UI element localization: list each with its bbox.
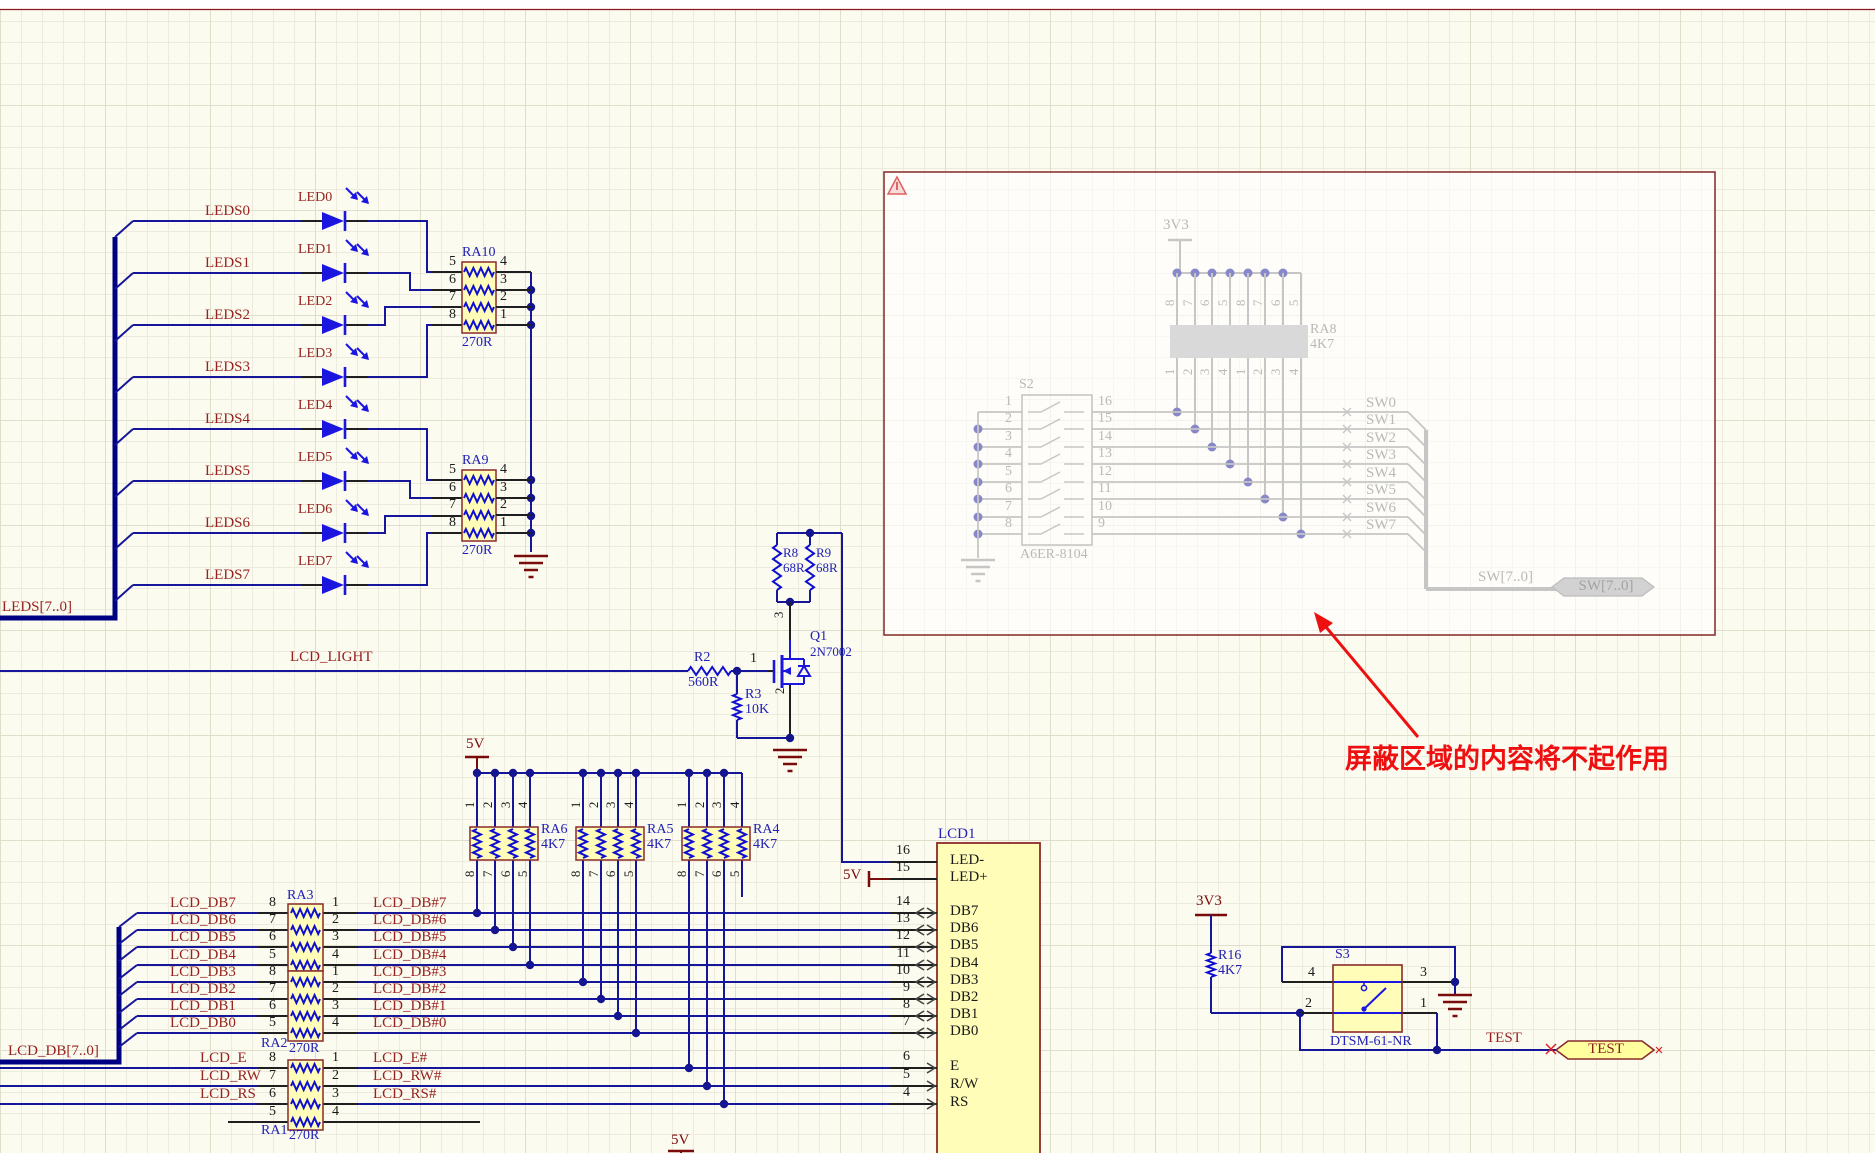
pin-number: 2: [481, 796, 495, 814]
pin-number: 6: [252, 1087, 276, 1102]
pin-number: 7: [432, 498, 456, 513]
pin-name: E: [950, 1059, 959, 1075]
value-label[interactable]: A6ER-8104: [1020, 548, 1088, 563]
pin-number: 8: [675, 865, 689, 883]
net-label[interactable]: LCD_DB#4: [373, 948, 446, 964]
pin-name: DB7: [950, 904, 978, 920]
net-label[interactable]: SW5: [1366, 483, 1396, 499]
net-label[interactable]: LEDS1: [205, 256, 250, 272]
pin-number: 13: [1098, 447, 1112, 462]
net-label[interactable]: LCD_DB6: [170, 913, 236, 929]
pin-number: 1: [675, 796, 689, 814]
pin-name: DB3: [950, 973, 978, 989]
pin-number: 2: [693, 796, 707, 814]
pin-number: 8: [252, 965, 276, 980]
pin-name: DB0: [950, 1024, 978, 1040]
bus-net-label[interactable]: LCD_DB[7..0]: [8, 1044, 99, 1060]
designator-label[interactable]: S3: [1335, 948, 1350, 963]
pin-number: 9: [1098, 517, 1105, 532]
value-label[interactable]: 4K7: [1218, 964, 1242, 979]
pin-number: 8: [432, 308, 456, 323]
pin-number: 1: [569, 796, 583, 814]
net-label[interactable]: LCD_RW#: [373, 1069, 441, 1085]
lcd-data-bus: [0, 913, 937, 1122]
pin-number: 3: [604, 796, 618, 814]
pin-number: 13: [884, 912, 910, 927]
net-label[interactable]: LCD_DB#3: [373, 965, 446, 981]
power-label[interactable]: 3V3: [1163, 218, 1189, 234]
pin-number: 7: [1251, 294, 1265, 312]
test-circuit: [1195, 915, 1662, 1054]
designator-label[interactable]: R2: [694, 651, 710, 666]
resistor-network-ra9[interactable]: [462, 470, 531, 541]
pin-number: 6: [432, 481, 456, 496]
power-label[interactable]: 5V: [671, 1133, 689, 1149]
pin-number: 4: [500, 255, 507, 270]
pin-number: 15: [884, 861, 910, 876]
net-label[interactable]: LCD_E#: [373, 1051, 427, 1067]
designator-label[interactable]: LED6: [298, 503, 332, 518]
pin-number: 5: [994, 465, 1012, 480]
designator-label[interactable]: LED1: [298, 243, 332, 258]
pin-number: 6: [432, 273, 456, 288]
pin-number: 8: [569, 865, 583, 883]
pin-number: 1: [332, 965, 339, 980]
net-label[interactable]: LCD_RS: [200, 1087, 256, 1103]
value-label[interactable]: 68R: [783, 561, 805, 575]
pin-number: 11: [1098, 482, 1111, 497]
port-label[interactable]: SW[7..0]: [1566, 579, 1646, 595]
value-label[interactable]: 270R: [289, 1042, 319, 1057]
value-label[interactable]: 10K: [745, 703, 769, 718]
pin-number: 1: [463, 796, 477, 814]
pin-number: 2: [773, 682, 787, 700]
net-label[interactable]: TEST: [1486, 1031, 1522, 1047]
pin-name: LED+: [950, 870, 988, 886]
designator-label[interactable]: RA6: [541, 823, 567, 838]
pin-number: 10: [884, 964, 910, 979]
pin-number: 6: [1269, 294, 1283, 312]
designator-label[interactable]: LED4: [298, 399, 332, 414]
designator-label[interactable]: S2: [1019, 378, 1034, 393]
designator-label[interactable]: Q1: [810, 630, 827, 645]
resistor-network-ra10[interactable]: [462, 262, 531, 333]
pin-number: 7: [432, 290, 456, 305]
resistor-network-ra1[interactable]: [288, 1060, 323, 1130]
pin-number: 16: [1098, 395, 1112, 410]
value-label[interactable]: 270R: [462, 544, 492, 559]
pin-name: RS: [950, 1095, 968, 1111]
pin-number: 3: [994, 430, 1012, 445]
pin-number: 10: [1098, 500, 1112, 515]
pin-number: 1: [1163, 363, 1177, 381]
pin-number: 2: [332, 982, 339, 997]
pin-number: 1: [500, 308, 507, 323]
pin-number: 4: [500, 463, 507, 478]
resistor-network-ra2[interactable]: [288, 971, 323, 1041]
pin-number: 12: [1098, 465, 1112, 480]
net-label[interactable]: SW3: [1366, 448, 1396, 464]
value-label[interactable]: 4K7: [647, 838, 671, 853]
pin-number: 3: [1420, 966, 1427, 981]
pin-number: 7: [1181, 294, 1195, 312]
pin-number: 1: [500, 516, 507, 531]
net-label[interactable]: LCD_DB#7: [373, 896, 446, 912]
net-label[interactable]: LCD_DB5: [170, 930, 236, 946]
pin-number: 2: [500, 498, 507, 513]
net-label[interactable]: LEDS7: [205, 568, 250, 584]
pin-number: 5: [432, 255, 456, 270]
designator-label[interactable]: RA2: [261, 1037, 287, 1052]
designator-label[interactable]: RA1: [261, 1124, 287, 1139]
designator-label[interactable]: LED7: [298, 555, 332, 570]
designator-label[interactable]: LED0: [298, 191, 332, 206]
pin-number: 2: [1181, 363, 1195, 381]
value-label[interactable]: 4K7: [541, 838, 565, 853]
designator-label[interactable]: R8: [783, 546, 798, 560]
pin-number: 12: [884, 929, 910, 944]
pin-number: 4: [994, 447, 1012, 462]
pin-number: 2: [1305, 997, 1312, 1012]
designator-label[interactable]: R9: [816, 546, 831, 560]
value-label[interactable]: 68R: [816, 561, 838, 575]
value-label[interactable]: 4K7: [753, 838, 777, 853]
net-label[interactable]: LEDS6: [205, 516, 250, 532]
value-label[interactable]: 560R: [688, 676, 718, 691]
pin-number: 4: [1287, 363, 1301, 381]
pin-number: 14: [1098, 430, 1112, 445]
pin-number: 7: [481, 865, 495, 883]
pin-number: 1: [1234, 363, 1248, 381]
pin-name: R/W: [950, 1077, 978, 1093]
pin-number: 3: [499, 796, 513, 814]
pin-number: 5: [728, 865, 742, 883]
value-label[interactable]: 2N7002: [810, 645, 852, 659]
pin-name: DB1: [950, 1007, 978, 1023]
pin-number: 8: [463, 865, 477, 883]
pin-number: 3: [500, 481, 507, 496]
net-label[interactable]: LCD_LIGHT: [290, 650, 373, 666]
net-label[interactable]: LCD_DB#5: [373, 930, 446, 946]
net-label[interactable]: LCD_DB4: [170, 948, 236, 964]
pin-number: 4: [622, 796, 636, 814]
pin-number: 5: [516, 865, 530, 883]
designator-label[interactable]: LED5: [298, 451, 332, 466]
pin-number: 6: [604, 865, 618, 883]
pin-number: 3: [710, 796, 724, 814]
net-label[interactable]: LCD_DB#0: [373, 1016, 446, 1032]
pin-number: 3: [500, 273, 507, 288]
net-label[interactable]: LCD_DB#2: [373, 982, 446, 998]
pin-number: 6: [252, 930, 276, 945]
pin-number: 1: [332, 1051, 339, 1066]
resistor-network-ra6[interactable]: [470, 827, 538, 860]
pin-number: 7: [587, 865, 601, 883]
pin-number: 8: [252, 896, 276, 911]
net-label[interactable]: LEDS4: [205, 412, 250, 428]
pin-number: 4: [884, 1086, 910, 1101]
pin-name: DB5: [950, 938, 978, 954]
pin-number: 15: [1098, 412, 1112, 427]
pin-number: 1: [750, 652, 757, 667]
pin-number: 6: [499, 865, 513, 883]
value-label[interactable]: 270R: [462, 336, 492, 351]
value-label[interactable]: 270R: [289, 1129, 319, 1144]
pin-number: 2: [500, 290, 507, 305]
designator-label[interactable]: RA3: [287, 889, 313, 904]
net-label[interactable]: SW4: [1366, 466, 1396, 482]
net-label[interactable]: SW0: [1366, 396, 1396, 412]
pin-number: 7: [252, 913, 276, 928]
schematic-sheet: LEDS[7..0]LEDS0LED0LEDS1LED1LEDS2LED2LED…: [0, 0, 1875, 1153]
designator-label[interactable]: LED3: [298, 347, 332, 362]
designator-label[interactable]: RA8: [1310, 323, 1336, 338]
pin-number: 3: [1198, 363, 1212, 381]
annotation-text[interactable]: 屏蔽区域的内容将不起作用: [1345, 745, 1669, 773]
mosfet-q1[interactable]: [768, 640, 810, 688]
switch-s3[interactable]: [1333, 965, 1402, 1032]
net-label[interactable]: LEDS5: [205, 464, 250, 480]
pin-number: 8: [1163, 294, 1177, 312]
pin-number: 8: [432, 516, 456, 531]
pin-number: 8: [1234, 294, 1248, 312]
pin-number: 6: [884, 1050, 910, 1065]
pin-number: 4: [1216, 363, 1230, 381]
resistor-network-ra5[interactable]: [576, 827, 644, 860]
pin-number: 8: [252, 1051, 276, 1066]
pin-number: 6: [252, 999, 276, 1014]
pin-number: 2: [587, 796, 601, 814]
net-label[interactable]: SW1: [1366, 413, 1396, 429]
net-label[interactable]: LEDS2: [205, 308, 250, 324]
pin-number: 6: [994, 482, 1012, 497]
designator-label[interactable]: RA5: [647, 823, 673, 838]
schematic-canvas: [0, 0, 1875, 1153]
value-label[interactable]: 4K7: [1310, 338, 1334, 353]
pin-number: 4: [332, 1105, 339, 1120]
port-label[interactable]: TEST: [1566, 1042, 1646, 1058]
designator-label[interactable]: RA9: [462, 454, 488, 469]
pin-number: 7: [252, 1069, 276, 1084]
net-label[interactable]: LCD_E: [200, 1051, 247, 1067]
pin-number: 4: [728, 796, 742, 814]
net-label[interactable]: LCD_RS#: [373, 1087, 436, 1103]
pin-number: 11: [884, 947, 910, 962]
pin-name: LED-: [950, 853, 984, 869]
pin-name: DB6: [950, 921, 978, 937]
designator-label[interactable]: R16: [1218, 949, 1241, 964]
pin-number: 7: [884, 1015, 910, 1030]
pin-number: 9: [884, 981, 910, 996]
pin-number: 2: [332, 913, 339, 928]
pin-number: 3: [332, 1087, 339, 1102]
designator-label[interactable]: RA10: [462, 246, 495, 261]
net-label[interactable]: SW7: [1366, 518, 1396, 534]
power-label[interactable]: 3V3: [1196, 894, 1222, 910]
pin-name: DB2: [950, 990, 978, 1006]
net-label[interactable]: LCD_DB#1: [373, 999, 446, 1015]
pin-number: 6: [1198, 294, 1212, 312]
pin-number: 5: [1287, 294, 1301, 312]
net-label[interactable]: LEDS0: [205, 204, 250, 220]
pin-number: 4: [332, 948, 339, 963]
pin-number: 5: [252, 1105, 276, 1120]
pin-number: 5: [884, 1068, 910, 1083]
designator-label[interactable]: RA4: [753, 823, 779, 838]
pin-number: 3: [1269, 363, 1283, 381]
pin-number: 1: [994, 395, 1012, 410]
net-label[interactable]: LCD_DB3: [170, 965, 236, 981]
net-label[interactable]: LCD_DB1: [170, 999, 236, 1015]
pin-number: 7: [252, 982, 276, 997]
net-label[interactable]: LCD_DB7: [170, 896, 236, 912]
resistor-network-ra3[interactable]: [288, 904, 323, 971]
pin-number: 16: [884, 844, 910, 859]
net-label[interactable]: SW[7..0]: [1478, 570, 1533, 586]
pin-number: 3: [332, 930, 339, 945]
pin-number: 8: [994, 517, 1012, 532]
value-label[interactable]: DTSM-61-NR: [1330, 1035, 1412, 1050]
net-label[interactable]: SW2: [1366, 431, 1396, 447]
pin-number: 5: [252, 948, 276, 963]
power-label[interactable]: 5V: [843, 868, 861, 884]
power-label[interactable]: 5V: [466, 737, 484, 753]
pin-number: 5: [432, 463, 456, 478]
net-label[interactable]: SW6: [1366, 501, 1396, 517]
pin-number: 7: [994, 500, 1012, 515]
pin-number: 7: [693, 865, 707, 883]
pin-number: 4: [332, 1016, 339, 1031]
pin-number: 8: [884, 998, 910, 1013]
net-label[interactable]: LCD_DB#6: [373, 913, 446, 929]
net-label[interactable]: LCD_DB0: [170, 1016, 236, 1032]
designator-label[interactable]: R3: [745, 688, 761, 703]
designator-label[interactable]: LED2: [298, 295, 332, 310]
designator-label[interactable]: LCD1: [938, 827, 976, 843]
pin-number: 4: [1308, 966, 1315, 981]
resistor-network-ra4[interactable]: [682, 827, 750, 860]
pin-number: 2: [1251, 363, 1265, 381]
pin-number: 5: [1216, 294, 1230, 312]
pin-number: 1: [332, 896, 339, 911]
pin-number: 14: [884, 895, 910, 910]
pin-number: 2: [994, 412, 1012, 427]
pin-name: DB4: [950, 956, 978, 972]
pin-number: 3: [332, 999, 339, 1014]
pin-number: 4: [516, 796, 530, 814]
net-label[interactable]: LEDS3: [205, 360, 250, 376]
pin-number: 2: [332, 1069, 339, 1084]
pin-number: 3: [772, 606, 786, 624]
pin-number: 6: [710, 865, 724, 883]
net-label[interactable]: LCD_DB2: [170, 982, 236, 998]
pin-number: 5: [622, 865, 636, 883]
pin-number: 1: [1420, 997, 1427, 1012]
bus-net-label[interactable]: LEDS[7..0]: [2, 600, 72, 616]
pin-number: 5: [252, 1016, 276, 1031]
